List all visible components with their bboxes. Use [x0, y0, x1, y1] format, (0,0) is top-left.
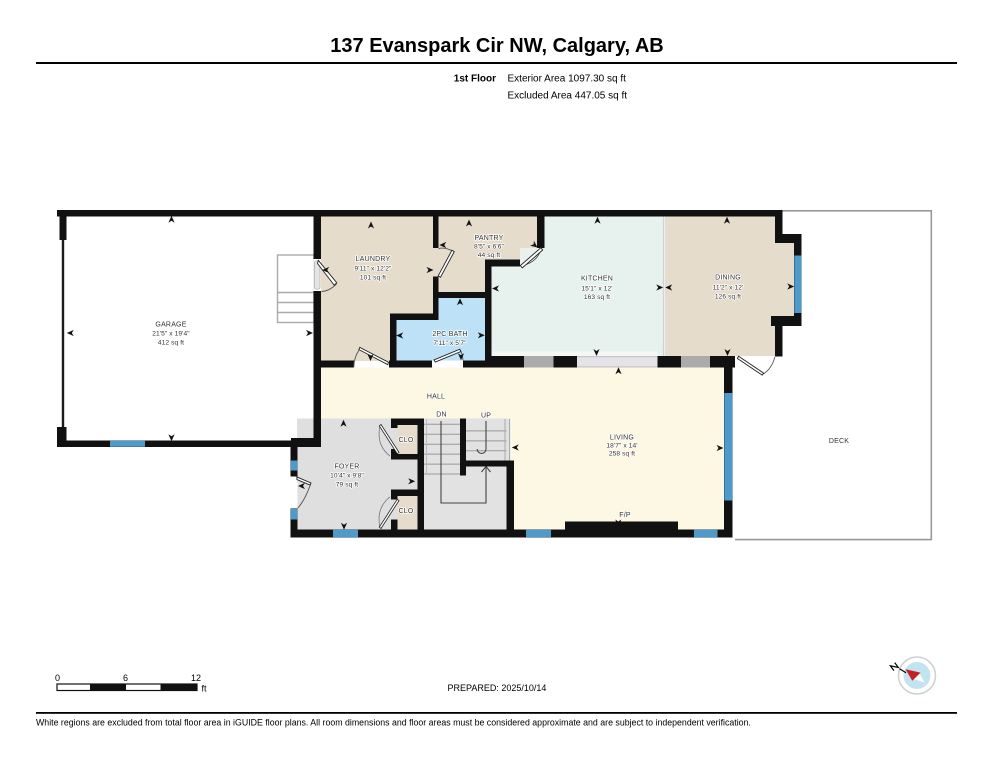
- svg-text:258 sq ft: 258 sq ft: [609, 451, 635, 458]
- svg-text:79 sq ft: 79 sq ft: [336, 482, 358, 489]
- svg-text:101 sq ft: 101 sq ft: [360, 275, 386, 282]
- svg-text:CLO: CLO: [399, 508, 414, 515]
- svg-text:15'1" x 12': 15'1" x 12': [581, 286, 612, 293]
- svg-text:8'5" x 6'6": 8'5" x 6'6": [474, 244, 504, 251]
- svg-text:2PC BATH: 2PC BATH: [432, 331, 467, 338]
- svg-text:PREPARED: 2025/10/14: PREPARED: 2025/10/14: [448, 683, 547, 693]
- svg-text:ft: ft: [202, 684, 208, 694]
- svg-text:UP: UP: [481, 413, 491, 420]
- svg-text:7'11" x 5'7": 7'11" x 5'7": [433, 340, 467, 347]
- svg-text:F/P: F/P: [619, 512, 631, 519]
- svg-text:44 sq ft: 44 sq ft: [478, 252, 500, 259]
- svg-text:FOYER: FOYER: [334, 464, 359, 471]
- svg-text:11'2" x 12': 11'2" x 12': [713, 285, 744, 292]
- svg-text:LAUNDRY: LAUNDRY: [356, 256, 391, 263]
- svg-text:PANTRY: PANTRY: [475, 235, 504, 242]
- svg-text:White regions are excluded fro: White regions are excluded from total fl…: [36, 718, 751, 728]
- svg-text:12: 12: [191, 673, 201, 683]
- svg-text:1st Floor: 1st Floor: [454, 74, 496, 85]
- svg-text:HALL: HALL: [427, 394, 445, 401]
- svg-text:LIVING: LIVING: [610, 435, 634, 442]
- svg-text:6: 6: [123, 673, 128, 683]
- svg-text:KITCHEN: KITCHEN: [581, 276, 613, 283]
- svg-text:DINING: DINING: [715, 275, 741, 282]
- svg-text:9'11" x 12'2": 9'11" x 12'2": [355, 266, 393, 273]
- svg-text:DECK: DECK: [829, 438, 849, 445]
- svg-text:0: 0: [55, 673, 60, 683]
- svg-text:412 sq ft: 412 sq ft: [158, 340, 184, 347]
- svg-text:18'7" x 14': 18'7" x 14': [606, 443, 637, 450]
- svg-text:Excluded Area 447.05 sq ft: Excluded Area 447.05 sq ft: [508, 91, 628, 102]
- svg-text:DN: DN: [436, 412, 447, 419]
- svg-text:163 sq ft: 163 sq ft: [584, 294, 610, 301]
- svg-text:21'5" x 19'4": 21'5" x 19'4": [152, 331, 190, 338]
- svg-text:Exterior Area 1097.30 sq ft: Exterior Area 1097.30 sq ft: [508, 74, 627, 85]
- svg-text:10'4" x 9'8": 10'4" x 9'8": [330, 473, 364, 480]
- svg-text:GARAGE: GARAGE: [155, 322, 186, 329]
- svg-text:CLO: CLO: [399, 437, 414, 444]
- svg-text:126 sq ft: 126 sq ft: [715, 294, 741, 301]
- svg-text:137 Evanspark Cir NW, Calgary,: 137 Evanspark Cir NW, Calgary, AB: [330, 35, 663, 57]
